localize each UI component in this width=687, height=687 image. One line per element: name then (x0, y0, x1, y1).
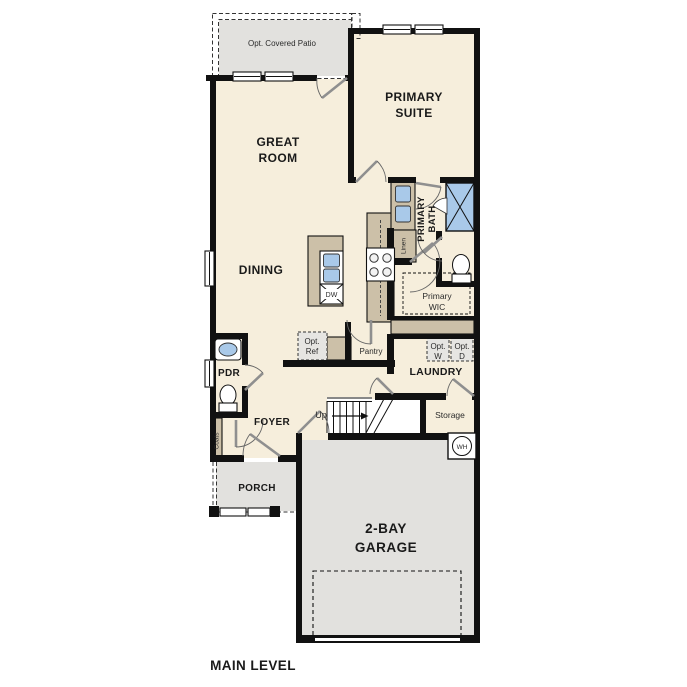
room-label-porch: PORCH (238, 483, 276, 494)
stairs-up-label: Up (315, 410, 327, 420)
toilet-icon (453, 255, 470, 276)
room-label-great-room: GREAT (256, 135, 299, 149)
opt-dryer-label: Opt. (454, 342, 469, 351)
svg-text:BATH: BATH (427, 206, 438, 233)
porch-post (270, 506, 280, 517)
svg-text:PRIMARY: PRIMARY (416, 196, 427, 242)
floor-plan-canvas: Opt. Covered Patio GREAT ROOM PRIMARY SU… (0, 0, 687, 687)
room-label-dining: DINING (239, 263, 283, 277)
sink-icon (396, 206, 411, 222)
room-label-laundry: LAUNDRY (409, 366, 462, 378)
opt-ref-label: Opt. (304, 337, 319, 346)
stove-burner (383, 254, 391, 262)
room-label-garage: GARAGE (355, 540, 417, 555)
dishwasher-label: DW (326, 292, 338, 299)
stove-burner (370, 268, 378, 276)
room-label-linen: Linen (401, 238, 408, 254)
opt-washer-label: W (434, 352, 442, 361)
stair-landing (372, 399, 420, 433)
room-label-primary-wic: Primary (422, 291, 452, 301)
room-label-coats: Coats (214, 432, 221, 450)
porch-rail (248, 508, 270, 516)
laundry-cabinet (391, 320, 474, 334)
floor-plan: Opt. Covered Patio GREAT ROOM PRIMARY SU… (0, 0, 687, 687)
patio-slab (219, 20, 351, 76)
water-heater-label: WH (457, 444, 468, 451)
opt-washer-label: Opt. (430, 342, 445, 351)
porch-post (209, 506, 219, 517)
toilet-icon (220, 385, 236, 405)
stove-burner (370, 254, 378, 262)
opt-dryer-label: D (459, 352, 465, 361)
room-label-garage: 2-BAY (365, 521, 407, 536)
garage-door-line (315, 638, 460, 641)
toilet-tank (452, 274, 471, 283)
sink-icon (396, 186, 411, 202)
toilet-tank (219, 403, 237, 412)
room-label-primary-suite: PRIMARY (385, 90, 443, 104)
room-label-foyer: FOYER (254, 417, 290, 428)
room-label-patio: Opt. Covered Patio (248, 39, 317, 48)
room-label-storage: Storage (435, 410, 465, 420)
porch-rail (220, 508, 246, 516)
room-label-great-room: ROOM (259, 151, 298, 165)
room-label-primary-suite: SUITE (395, 106, 432, 120)
sink-icon (219, 343, 237, 356)
room-label-primary-wic: WIC (429, 302, 446, 312)
room-label-pantry: Pantry (359, 347, 382, 356)
staircase (327, 397, 420, 433)
sink-icon (324, 269, 340, 282)
room-label-pdr: PDR (218, 368, 240, 379)
sink-icon (324, 254, 340, 267)
stove-icon (367, 248, 395, 281)
plan-caption: MAIN LEVEL (210, 658, 296, 673)
opt-ref-label: Ref (306, 347, 319, 356)
stove-burner (383, 268, 391, 276)
garage-slab (302, 440, 474, 636)
